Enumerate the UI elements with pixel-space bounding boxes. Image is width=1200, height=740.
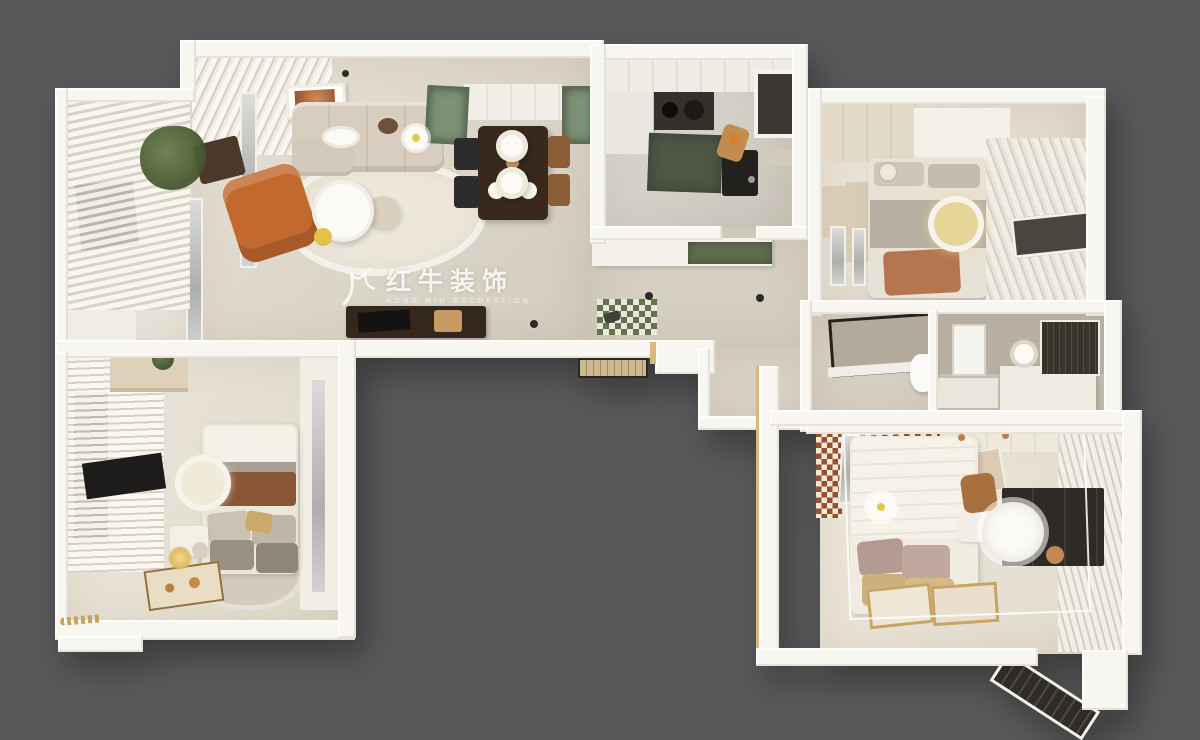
wall-kitchen-right [792, 44, 808, 240]
wardrobe-mirror-door [310, 378, 327, 594]
kitchen-island-green [647, 133, 723, 194]
knit-throw [378, 118, 398, 134]
dining-chair-dark-2 [454, 176, 480, 208]
wall-bedroomtop-right [1086, 96, 1106, 316]
daisy-center [412, 134, 420, 142]
entry-doormat [578, 358, 648, 378]
checker-accent-wall-side [816, 426, 842, 518]
watermark: 红牛装饰 HONG NIU DECORATION [338, 266, 531, 308]
brand-name-en: HONG NIU DECORATION [386, 297, 531, 305]
decor-box [434, 310, 462, 332]
pillow-g4 [256, 543, 298, 573]
vanity-round-mirror [1010, 340, 1038, 368]
wall-mid-horizontal [55, 340, 667, 358]
wall-bath-top [806, 300, 1118, 314]
floorplan-render: 红牛装饰 HONG NIU DECORATION [0, 0, 1200, 740]
wall-kitchen-left [590, 44, 606, 244]
wall-bedroom1-right [338, 340, 356, 638]
wall-living-top [180, 40, 604, 58]
hongniu-bull-logo [338, 266, 378, 308]
pendant-lamp-2 [496, 167, 528, 199]
wall-bedroom2-top [770, 410, 1130, 426]
daisy-pillow [404, 126, 428, 150]
display-cabinet-left [425, 85, 470, 145]
pendant-lamp-1 [496, 130, 528, 162]
hall-console-green-top [688, 242, 772, 264]
round-ceiling-light [928, 196, 984, 252]
bedside-lamp-glow [168, 546, 192, 570]
tv-console [346, 306, 486, 338]
leaning-mirror-1 [830, 226, 846, 286]
small-stool [192, 542, 208, 558]
hall-dot-1 [530, 320, 538, 328]
leaning-mirror-2 [852, 228, 866, 286]
brand-name-cn: 红牛装饰 [386, 269, 514, 294]
sofa-tray [322, 126, 360, 148]
wall-bedroomtop-top [810, 88, 1106, 104]
apartment-plan [0, 0, 1200, 740]
wall-kitchen-bottom-a [590, 226, 722, 240]
wall-clock [878, 162, 898, 182]
kettle [684, 100, 704, 120]
wall-kitchen-bottom-b [756, 226, 808, 240]
wall-passage-left [698, 348, 710, 424]
wall-bedroomtop-left [808, 88, 822, 316]
orange-fruit [728, 133, 741, 146]
wall-bedroom2-right [1122, 410, 1142, 655]
terracotta-blanket [883, 248, 961, 296]
wall-bedroom1-left [55, 352, 68, 638]
highlight-wire-outline [843, 426, 1091, 620]
faucet [748, 176, 755, 183]
ceiling-spotlight [342, 70, 349, 77]
wall-kitchen-top [592, 44, 806, 60]
pillow-gray-2 [928, 164, 980, 188]
pillow-tan-small [244, 510, 273, 534]
dining-chair-wood-1 [548, 136, 570, 168]
wall-balcony-top [55, 88, 195, 102]
entry-door-frame [650, 342, 656, 364]
dining-chair-wood-2 [548, 174, 570, 206]
wall-balcony-left [55, 88, 68, 356]
hall-dot-2 [645, 292, 653, 300]
round-ceiling-light-2 [175, 455, 231, 511]
watermark-text: 红牛装饰 HONG NIU DECORATION [386, 269, 531, 305]
coffee-machine [662, 102, 678, 118]
floor-cushion [314, 228, 332, 246]
wall-corner-pillar [1082, 650, 1128, 710]
wall-bedroom1-step [58, 636, 143, 652]
hall-dot-3 [756, 294, 764, 302]
bathroom-window [1040, 320, 1100, 376]
bathtub-ledge [938, 378, 998, 408]
wall-bath-divider [928, 310, 938, 422]
dining-chair-dark-1 [454, 138, 480, 170]
television [357, 309, 410, 333]
wainscot-panel-wall [464, 84, 562, 120]
bathroom-mirror [952, 324, 986, 376]
wall-bedroom2-bottom [756, 648, 1038, 666]
